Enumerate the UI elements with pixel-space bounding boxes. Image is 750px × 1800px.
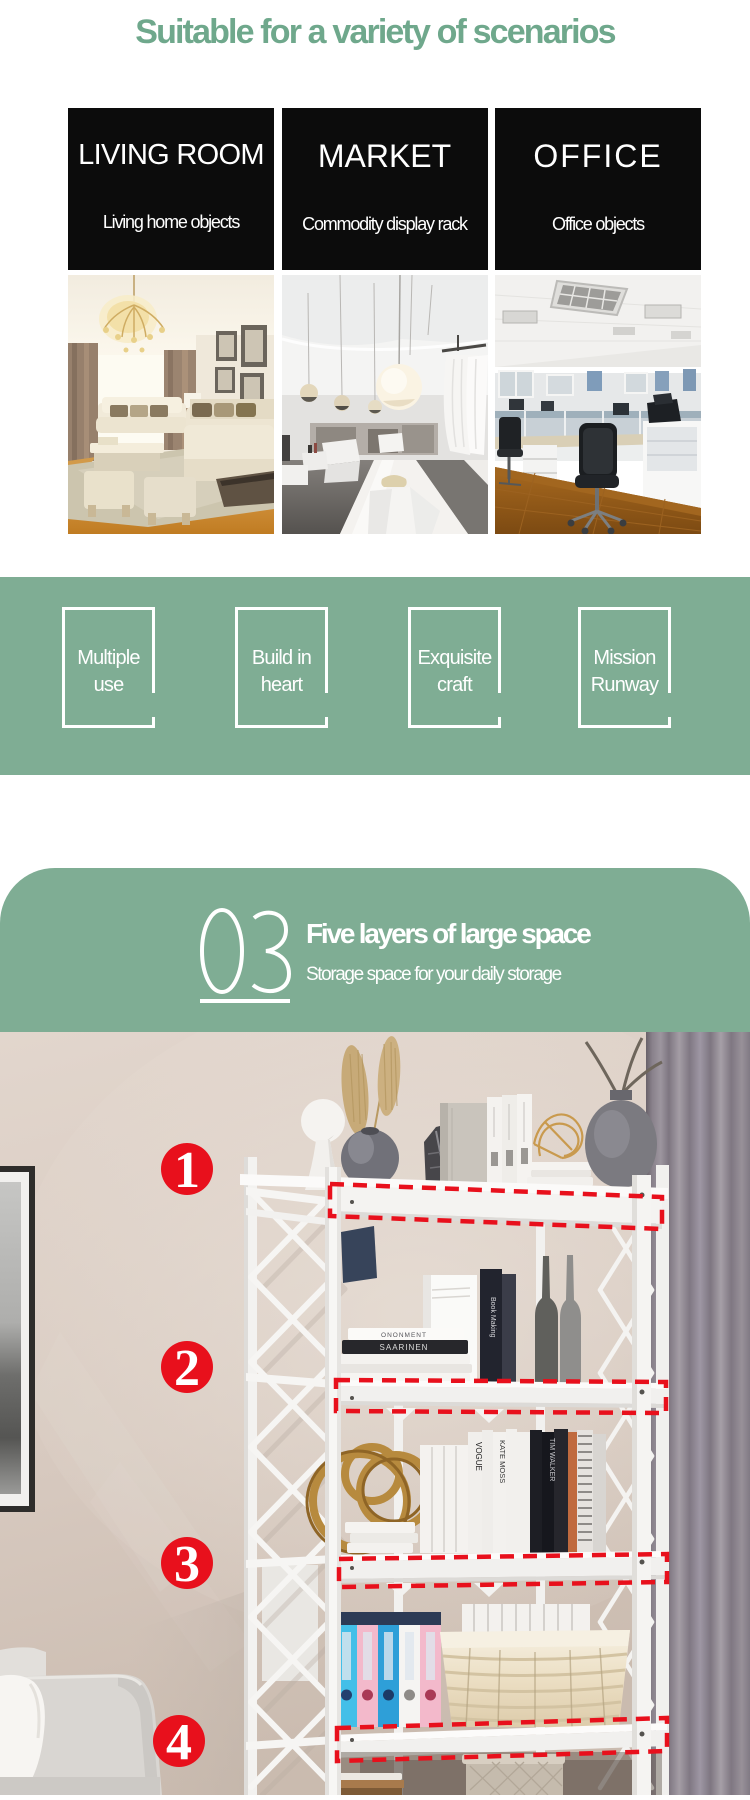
svg-text:ONONMENT: ONONMENT: [381, 1332, 427, 1339]
svg-text:3: 3: [174, 1536, 200, 1593]
svg-text:KATE MOSS: KATE MOSS: [498, 1440, 507, 1483]
svg-text:SAARINEN: SAARINEN: [380, 1343, 429, 1352]
svg-text:Book Making: Book Making: [489, 1297, 496, 1338]
svg-text:2: 2: [174, 1340, 200, 1397]
svg-text:4: 4: [166, 1714, 192, 1771]
svg-text:VOGUE: VOGUE: [474, 1442, 483, 1471]
svg-text:1: 1: [174, 1142, 200, 1199]
svg-text:TIM WALKER: TIM WALKER: [548, 1438, 555, 1481]
